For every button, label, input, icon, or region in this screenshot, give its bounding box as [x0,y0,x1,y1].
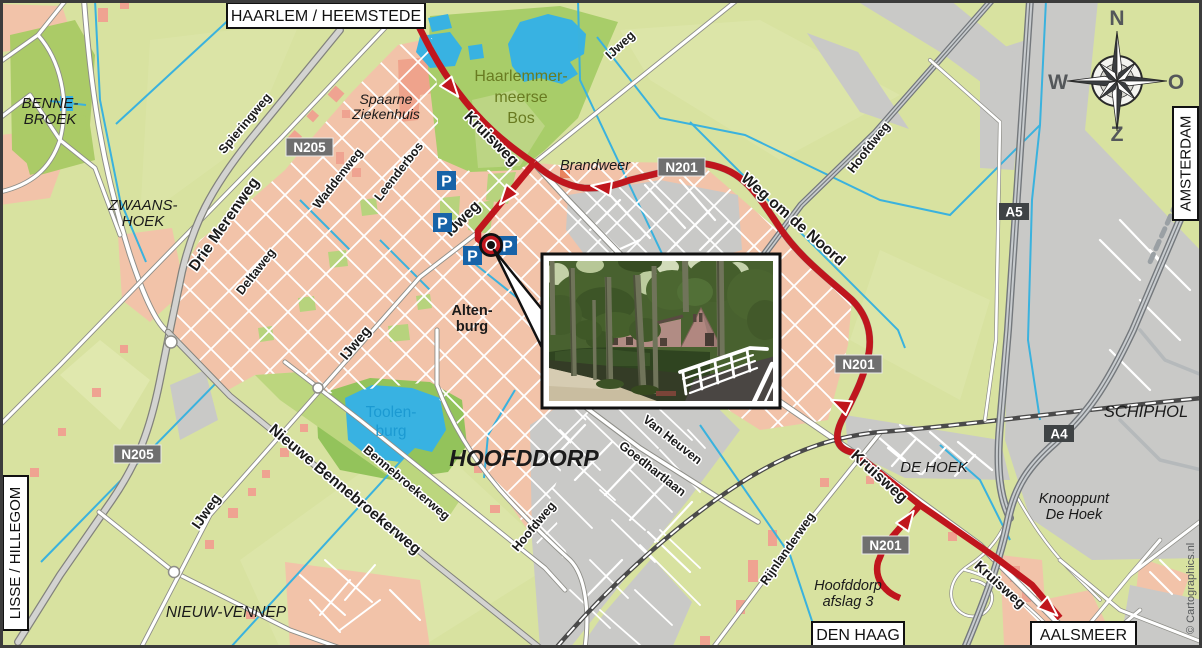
svg-text:afslag 3: afslag 3 [823,594,874,610]
svg-text:SCHIPHOL: SCHIPHOL [1104,403,1188,421]
svg-text:Hoofddorp: Hoofddorp [814,578,882,594]
svg-text:LISSE / HILLEGOM: LISSE / HILLEGOM [7,487,24,620]
svg-text:N205: N205 [121,447,154,462]
svg-text:NIEUW-VENNEP: NIEUW-VENNEP [166,604,287,621]
svg-text:N201: N201 [869,538,902,553]
svg-text:Bos: Bos [507,110,535,127]
svg-text:HOEK: HOEK [122,213,166,230]
svg-text:meerse: meerse [494,89,547,106]
svg-text:P: P [441,174,452,191]
svg-text:Brandweer: Brandweer [560,158,631,174]
svg-text:De Hoek: De Hoek [1046,507,1103,523]
svg-text:P: P [467,249,478,266]
svg-text:HOOFDDORP: HOOFDDORP [449,445,599,471]
svg-text:Ziekenhuis: Ziekenhuis [351,106,420,122]
svg-text:N201: N201 [842,357,875,372]
svg-text:Knooppunt: Knooppunt [1039,491,1110,507]
svg-text:DEN HAAG: DEN HAAG [816,627,900,644]
svg-text:AALSMEER: AALSMEER [1040,627,1127,644]
svg-text:A5: A5 [1005,205,1023,220]
svg-text:BENNE-: BENNE- [22,95,79,112]
svg-text:Haarlemmer-: Haarlemmer- [474,68,567,85]
svg-text:P: P [502,239,513,256]
svg-text:Alten-: Alten- [451,303,492,319]
svg-text:N201: N201 [665,160,698,175]
svg-text:burg: burg [375,423,406,440]
svg-text:DE HOEK: DE HOEK [900,459,969,476]
svg-text:burg: burg [456,319,488,335]
svg-text:ZWAANS-: ZWAANS- [108,197,178,214]
svg-text:BROEK: BROEK [24,111,78,128]
svg-text:N205: N205 [293,140,326,155]
svg-text:O: O [1168,71,1184,94]
svg-text:AMSTERDAM: AMSTERDAM [1178,116,1195,212]
svg-text:N: N [1109,7,1124,30]
svg-text:W: W [1048,71,1068,94]
svg-text:A4: A4 [1050,427,1068,442]
svg-text:© Cartographics.nl: © Cartographics.nl [1185,543,1197,634]
svg-text:HAARLEM / HEEMSTEDE: HAARLEM / HEEMSTEDE [231,8,421,25]
svg-text:Toolen-: Toolen- [366,404,417,421]
svg-text:Spaarne: Spaarne [360,91,413,107]
svg-text:P: P [437,216,448,233]
